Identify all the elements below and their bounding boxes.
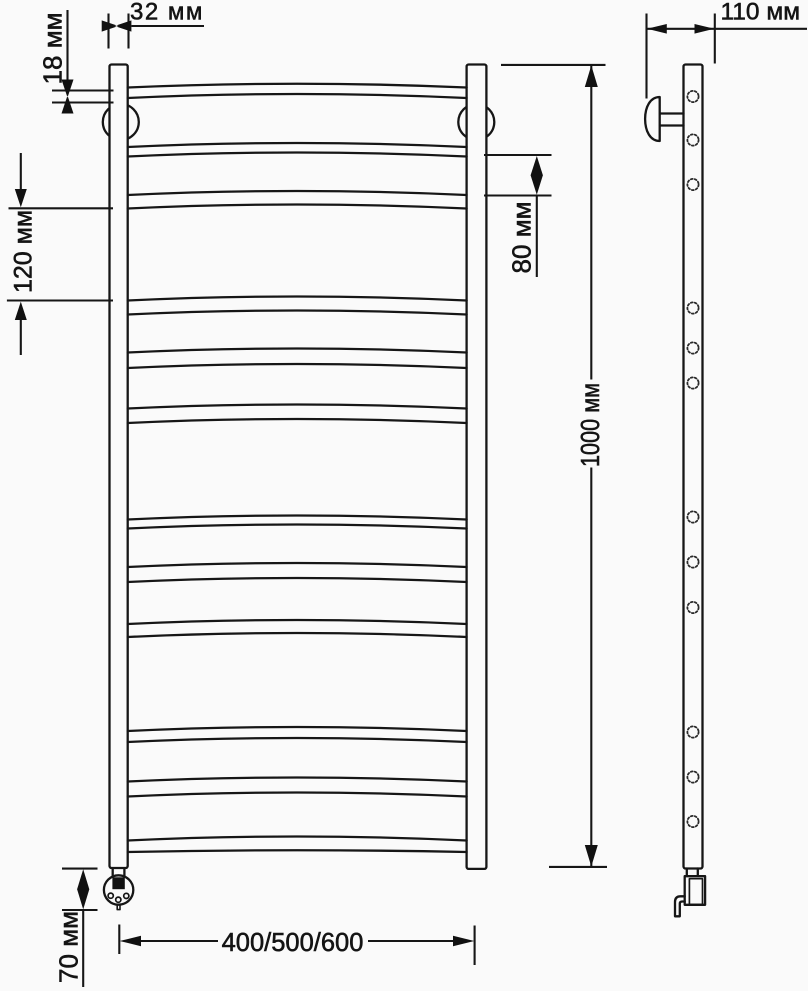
svg-text:400/500/600: 400/500/600 <box>222 929 364 957</box>
svg-text:1000 мм: 1000 мм <box>577 383 605 467</box>
svg-text:70 мм: 70 мм <box>54 911 84 983</box>
svg-text:80 мм: 80 мм <box>507 202 537 274</box>
svg-text:32 мм: 32 мм <box>130 0 204 26</box>
svg-text:110 мм: 110 мм <box>721 0 801 26</box>
svg-text:120 мм: 120 мм <box>10 210 38 293</box>
svg-text:18 мм: 18 мм <box>38 13 68 85</box>
